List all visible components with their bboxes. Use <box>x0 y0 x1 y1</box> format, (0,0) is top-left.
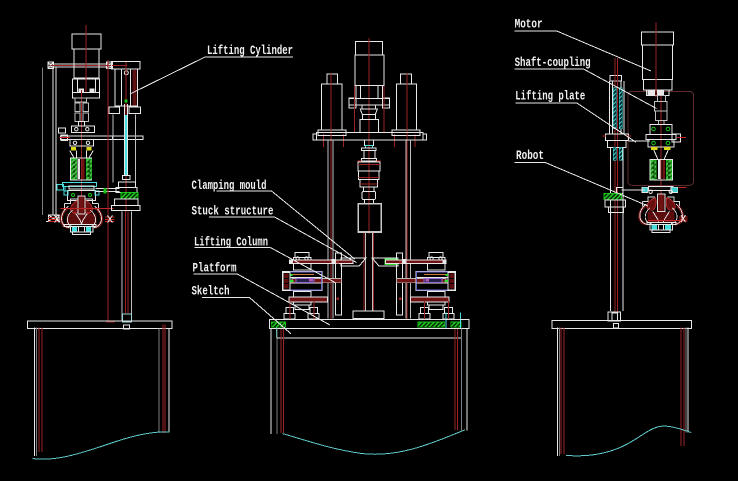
svg-text:Motor: Motor <box>515 17 543 32</box>
svg-text:Lifting Cylinder: Lifting Cylinder <box>207 43 293 58</box>
svg-text:Lifting Column: Lifting Column <box>194 234 268 249</box>
svg-text:Stuck structure: Stuck structure <box>192 204 274 219</box>
svg-text:Robot: Robot <box>516 148 544 163</box>
svg-text:Skeltch: Skeltch <box>192 284 230 299</box>
svg-text:Platform: Platform <box>193 261 237 276</box>
svg-text:Shaft-coupling: Shaft-coupling <box>515 55 591 70</box>
svg-text:Lifting plate: Lifting plate <box>515 89 585 104</box>
